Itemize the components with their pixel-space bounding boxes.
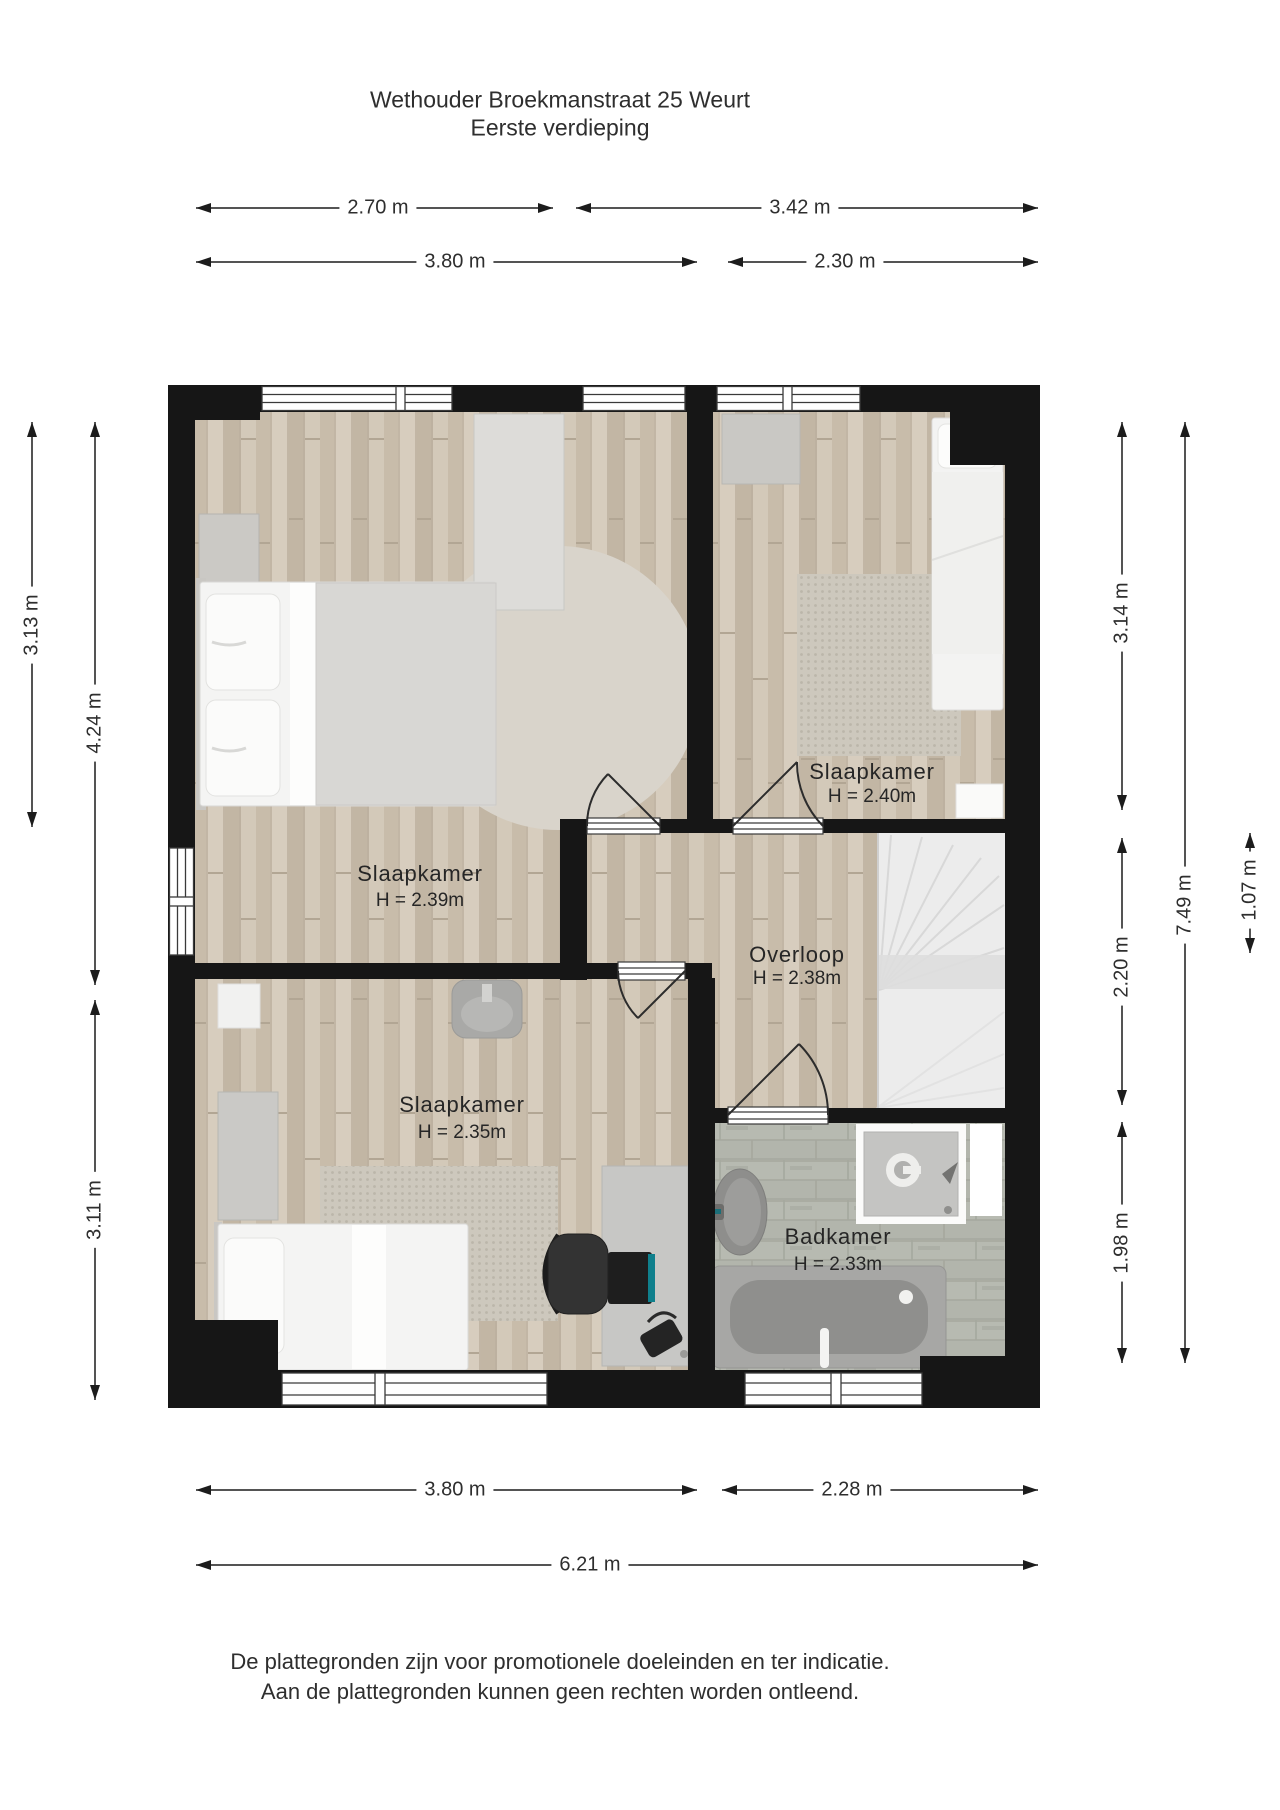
wall-corner-tl	[168, 385, 260, 420]
dim-top-230: 2.30 m	[806, 251, 883, 274]
disclaimer-line-2: Aan de plattegronden kunnen geen rechten…	[261, 1679, 859, 1705]
window-top-2	[583, 387, 685, 411]
window-left	[170, 848, 194, 955]
wall-bathroom-left	[688, 978, 715, 1370]
shower-knob	[944, 1206, 952, 1214]
room-label-bathroom: Badkamer	[785, 1224, 892, 1250]
bed-sheet-fold	[290, 583, 316, 805]
laptop-screen	[648, 1254, 655, 1302]
plan-title: Wethouder Broekmanstraat 25 Weurt	[370, 87, 750, 114]
room-height-bedroom-right: H = 2.40m	[828, 786, 916, 808]
dim-bottom-228: 2.28 m	[813, 1479, 890, 1502]
shower-drain-gap	[903, 1166, 921, 1174]
wall-sink-tap	[482, 984, 492, 1002]
door-opening-bedroom-main	[587, 818, 660, 834]
shelf	[218, 984, 260, 1028]
dim-right-314: 3.14 m	[1111, 574, 1134, 651]
wardrobe	[218, 1092, 278, 1220]
dim-top-342: 3.42 m	[761, 197, 838, 220]
dim-left-424: 4.24 m	[84, 684, 107, 761]
laptop	[608, 1252, 652, 1304]
dim-right-198: 1.98 m	[1111, 1204, 1134, 1281]
wall-corner-br	[920, 1356, 1040, 1408]
door-opening-bedroom-right	[733, 818, 823, 834]
bed-duvet	[316, 583, 496, 805]
wall-corner-tr	[950, 385, 1040, 465]
window-top-3	[717, 387, 860, 411]
chair	[548, 1234, 608, 1314]
floorplan-drawing	[0, 0, 1280, 1810]
floor-dot	[680, 1350, 688, 1358]
floorplan-page: Wethouder Broekmanstraat 25 Weurt Eerste…	[0, 0, 1280, 1810]
bed2-duvet	[932, 472, 1003, 654]
disclaimer-line-1: De plattegronden zijn voor promotionele …	[230, 1649, 889, 1675]
plan-subtitle: Eerste verdieping	[471, 115, 650, 142]
window-bottom-1	[282, 1373, 547, 1405]
room-height-bedroom-bottom: H = 2.35m	[418, 1122, 506, 1144]
window-top-1	[262, 387, 452, 411]
dim-right-220: 2.20 m	[1111, 928, 1134, 1005]
bathtub-handle	[820, 1328, 829, 1368]
room-label-landing: Overloop	[749, 942, 845, 968]
dresser-2	[722, 414, 800, 484]
wall-bedrooms-divider	[687, 410, 713, 820]
dim-left-313: 3.13 m	[21, 586, 44, 663]
wall-landing-left	[560, 819, 587, 980]
room-height-bathroom: H = 2.33m	[794, 1254, 882, 1276]
bathroom-niche	[970, 1124, 1002, 1216]
closet	[474, 414, 564, 610]
dim-left-311: 3.11 m	[84, 1172, 107, 1248]
dim-bottom-380: 3.80 m	[416, 1479, 493, 1502]
closet-2	[956, 784, 1003, 818]
stair-edge	[877, 833, 879, 1108]
stair-landing	[877, 955, 1005, 989]
dim-bottom-621: 6.21 m	[551, 1554, 628, 1577]
dim-top-270: 2.70 m	[339, 197, 416, 220]
room-label-bedroom-main: Slaapkamer	[357, 861, 482, 887]
room-label-bedroom-bottom: Slaapkamer	[399, 1092, 524, 1118]
dim-right-107: 1.07 m	[1239, 851, 1262, 928]
door-opening-bathroom	[728, 1107, 828, 1124]
room-height-bedroom-main: H = 2.39m	[376, 890, 464, 912]
wall-exterior-right	[1005, 385, 1040, 1408]
bathtub-drain	[899, 1290, 913, 1304]
staircase	[877, 833, 1005, 1108]
bed3-fold	[352, 1225, 386, 1369]
wall-corner-bl	[168, 1320, 278, 1408]
room-height-landing: H = 2.38m	[753, 968, 841, 990]
window-bottom-2	[745, 1373, 922, 1405]
room-label-bedroom-right: Slaapkamer	[809, 759, 934, 785]
washbasin-bowl	[723, 1178, 761, 1246]
dim-right-749: 7.49 m	[1174, 866, 1197, 943]
dim-top-380: 3.80 m	[416, 251, 493, 274]
door-opening-bedroom-bottom	[618, 962, 685, 980]
